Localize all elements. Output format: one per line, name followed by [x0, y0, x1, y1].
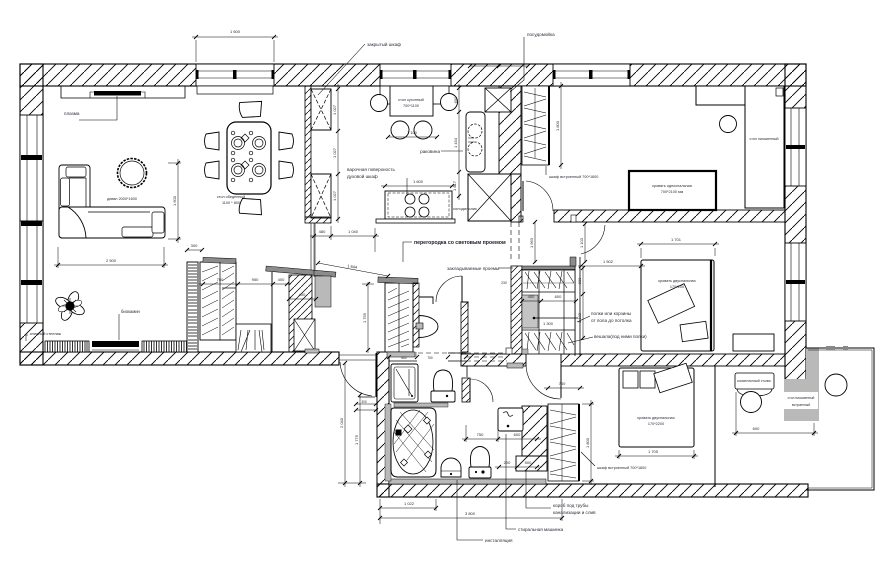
svg-text:холодильник: холодильник — [453, 206, 477, 211]
svg-text:950: 950 — [252, 277, 259, 282]
svg-text:230: 230 — [501, 281, 507, 285]
svg-text:300: 300 — [191, 243, 198, 248]
svg-text:700*2100 мм: 700*2100 мм — [661, 190, 684, 194]
svg-text:закладываемые проемы: закладываемые проемы — [447, 266, 499, 271]
svg-text:инсталляция: инсталляция — [485, 538, 513, 543]
svg-text:кровать односпальная: кровать односпальная — [652, 184, 692, 188]
svg-text:кровать двуспальная: кровать двуспальная — [658, 279, 695, 283]
svg-text:стол письменный: стол письменный — [749, 137, 778, 141]
svg-text:750: 750 — [559, 381, 566, 386]
svg-text:книжный стеллаж: книжный стеллаж — [30, 332, 62, 336]
svg-text:канализации и слив: канализации и слив — [553, 510, 596, 515]
svg-text:2 040: 2 040 — [339, 417, 344, 428]
svg-text:раковина: раковина — [420, 149, 440, 154]
svg-text:1 600: 1 600 — [230, 29, 241, 34]
svg-text:плазма: плазма — [64, 111, 80, 116]
svg-text:духовой шкаф: духовой шкаф — [347, 173, 378, 179]
svg-text:стол кухонный: стол кухонный — [398, 98, 424, 102]
svg-text:1 800: 1 800 — [585, 437, 590, 448]
svg-text:1 775: 1 775 — [354, 434, 359, 445]
svg-text:200: 200 — [504, 460, 511, 465]
svg-text:800: 800 — [577, 277, 582, 284]
svg-text:варочная поверхность: варочная поверхность — [347, 167, 395, 172]
svg-text:1 103: 1 103 — [579, 237, 584, 248]
svg-text:стиральная машинка: стиральная машинка — [518, 527, 564, 532]
svg-text:шкаф встроенный 700*1800: шкаф встроенный 700*1800 — [549, 175, 598, 179]
svg-text:стол письменный: стол письменный — [788, 396, 815, 400]
svg-text:1 022: 1 022 — [404, 501, 415, 506]
svg-text:1100 * 800: 1100 * 800 — [222, 201, 240, 205]
svg-text:встроенный: встроенный — [792, 403, 810, 407]
svg-text:посудомойка: посудомойка — [527, 31, 555, 37]
svg-text:1 502: 1 502 — [603, 259, 614, 264]
svg-text:2 500: 2 500 — [106, 258, 117, 263]
svg-text:кровать двуспальная: кровать двуспальная — [637, 416, 674, 420]
svg-text:750: 750 — [217, 277, 224, 282]
svg-text:400: 400 — [299, 292, 306, 297]
svg-text:биокамин: биокамин — [121, 309, 141, 314]
svg-text:750: 750 — [427, 356, 433, 360]
svg-text:170*2200: 170*2200 — [648, 422, 664, 426]
svg-text:1 027: 1 027 — [332, 104, 337, 115]
svg-text:750: 750 — [477, 432, 484, 437]
svg-text:500: 500 — [525, 460, 532, 465]
svg-text:от пола до потолка: от пола до потолка — [591, 318, 632, 323]
svg-text:400: 400 — [278, 277, 285, 282]
svg-text:1 434: 1 434 — [453, 137, 458, 148]
svg-text:закрытый шкаф: закрытый шкаф — [367, 41, 401, 47]
svg-text:3 800: 3 800 — [465, 511, 476, 516]
svg-text:косметический столик: косметический столик — [737, 379, 771, 383]
svg-text:400: 400 — [528, 294, 535, 299]
svg-text:1 600: 1 600 — [172, 195, 177, 206]
svg-text:1 027: 1 027 — [332, 190, 337, 201]
svg-text:полки или корзины: полки или корзины — [591, 311, 631, 316]
svg-text:170*200: 170*200 — [670, 285, 684, 289]
svg-text:480: 480 — [319, 229, 326, 234]
svg-text:диван 2000*1600: диван 2000*1600 — [107, 197, 137, 201]
svg-text:1 100: 1 100 — [407, 130, 418, 135]
svg-text:1 017: 1 017 — [452, 180, 457, 191]
svg-text:1 755: 1 755 — [362, 312, 367, 323]
svg-text:1 705: 1 705 — [648, 449, 659, 454]
svg-text:шкаф встроенный 700*1800: шкаф встроенный 700*1800 — [597, 466, 646, 470]
svg-text:600: 600 — [453, 96, 458, 103]
svg-text:1 040: 1 040 — [348, 229, 359, 234]
svg-text:стол обеденный: стол обеденный — [217, 195, 246, 199]
svg-text:600: 600 — [514, 432, 521, 437]
svg-text:перегородка со световым проемо: перегородка со световым проемом — [414, 240, 506, 246]
svg-text:600: 600 — [555, 294, 562, 299]
svg-text:1 800: 1 800 — [555, 120, 560, 131]
svg-text:1 300: 1 300 — [543, 321, 554, 326]
svg-text:600: 600 — [753, 426, 760, 431]
svg-text:1 701: 1 701 — [671, 237, 682, 242]
svg-text:300: 300 — [361, 400, 367, 404]
svg-text:1 600: 1 600 — [413, 179, 424, 184]
svg-text:1 963: 1 963 — [529, 237, 534, 248]
svg-text:860: 860 — [401, 356, 407, 360]
svg-text:короб под трубы: короб под трубы — [553, 503, 588, 508]
svg-text:1 027: 1 027 — [332, 147, 337, 158]
svg-text:вешала(под ними полки): вешала(под ними полки) — [594, 334, 647, 339]
svg-text:700*1100: 700*1100 — [403, 104, 419, 108]
